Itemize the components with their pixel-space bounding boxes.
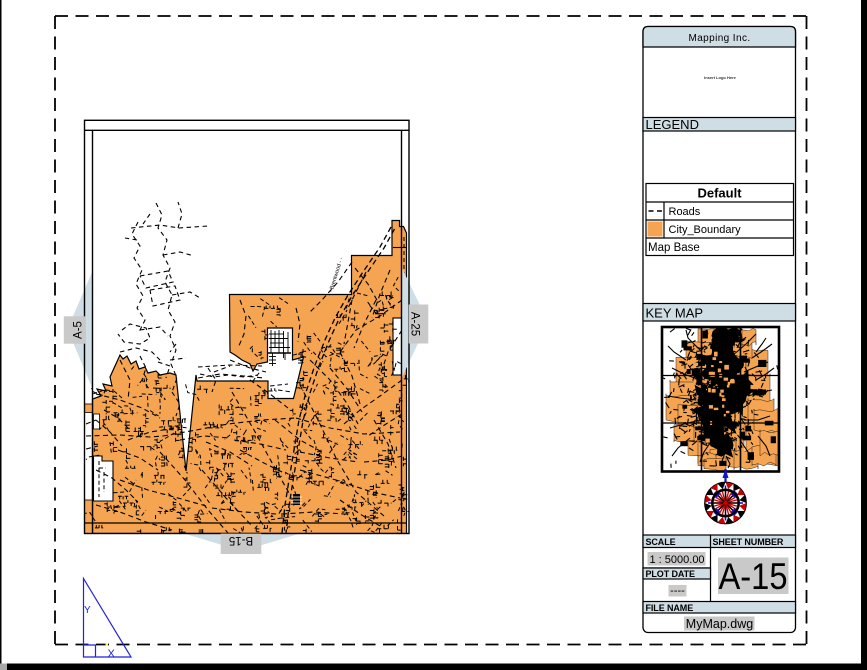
svg-text:----: ---- (670, 585, 685, 597)
svg-text:Default: Default (697, 186, 742, 201)
svg-text:SCALE: SCALE (646, 537, 676, 547)
svg-text:PLOT DATE: PLOT DATE (646, 569, 696, 579)
svg-text:MyMap.dwg: MyMap.dwg (686, 617, 753, 631)
svg-text:City_Boundary: City_Boundary (669, 224, 742, 236)
svg-text:A-15: A-15 (719, 556, 788, 597)
svg-text:Map Base: Map Base (648, 242, 700, 254)
svg-text:Mapping Inc.: Mapping Inc. (688, 33, 750, 44)
svg-text:X: X (108, 648, 116, 660)
svg-text:A-25: A-25 (409, 312, 421, 336)
svg-text:FILE NAME: FILE NAME (646, 603, 694, 613)
svg-text:1 : 5000.00: 1 : 5000.00 (650, 554, 705, 566)
svg-text:Insert Logo Here: Insert Logo Here (704, 75, 737, 80)
svg-text:SHEET NUMBER: SHEET NUMBER (713, 537, 784, 547)
svg-text:B-15: B-15 (229, 534, 253, 546)
svg-text:Y: Y (84, 605, 91, 616)
svg-text:Roads: Roads (669, 206, 701, 218)
svg-text:KEY MAP: KEY MAP (646, 306, 704, 321)
svg-text:LEGEND: LEGEND (646, 117, 699, 132)
svg-text:A-5: A-5 (73, 321, 85, 339)
